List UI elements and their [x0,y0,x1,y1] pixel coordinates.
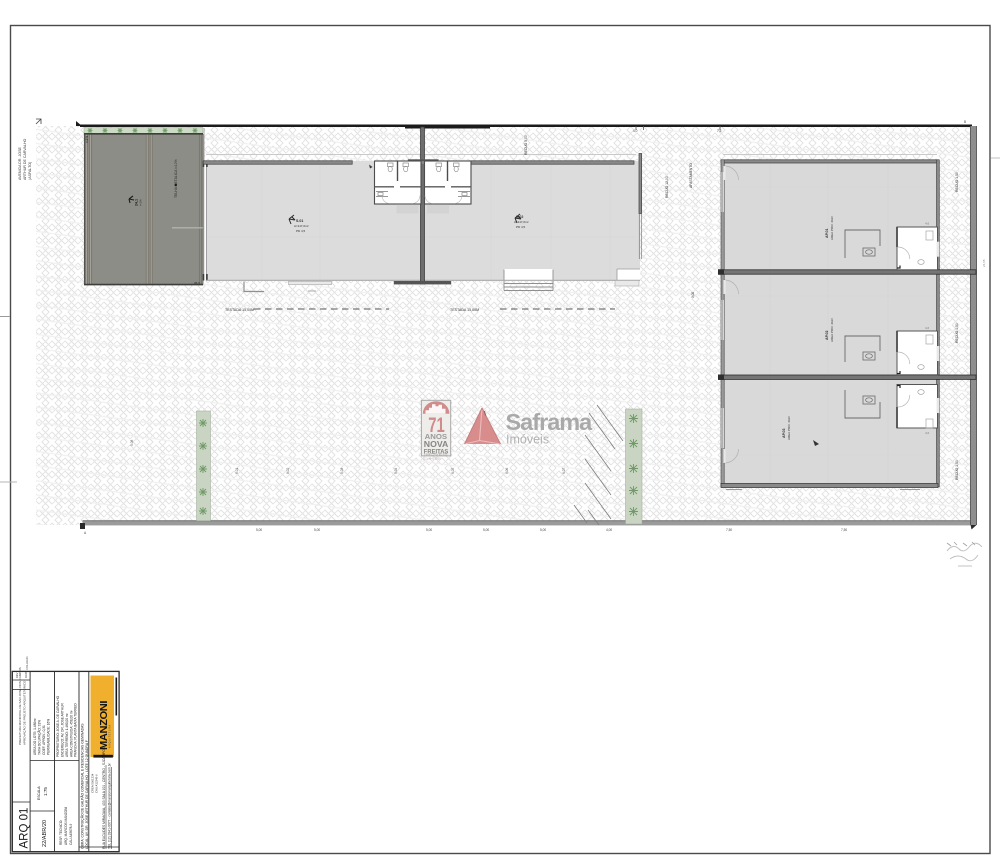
svg-text:AP.01: AP.01 [825,228,829,238]
svg-text:LOCAL: AV. DR. JOSE ARTHUR DE: LOCAL: AV. DR. JOSE ARTHUR DE CARVALHO -… [85,740,89,849]
svg-text:OBRA: CONSTRUÇÃO DE GALPÃO COM: OBRA: CONSTRUÇÃO DE GALPÃO COMERCIAL E R… [80,723,85,849]
svg-text:PRANCHA: PLANTA BAIXA TERREO: PRANCHA: PLANTA BAIXA TERREO [74,703,78,757]
svg-text:PD 4,5: PD 4,5 [296,229,306,233]
svg-text:i=1%: i=1% [85,136,89,143]
svg-text:AFASTAMENTO: AFASTAMENTO [689,163,693,188]
svg-text:ARQ 01: ARQ 01 [19,808,31,849]
svg-text:PREFEITURA MUNICIPAL DE SAO JO: PREFEITURA MUNICIPAL DE SAO JOSE DOS CAM… [18,667,22,745]
svg-text:RUA EUCLIDES MIRAGAIA, 433 SAL: RUA EUCLIDES MIRAGAIA, 433 SALA 101 - CE… [102,746,106,849]
svg-text:AREA PRIV. 44m²: AREA PRIV. 44m² [830,318,834,342]
svg-text:V.02: V.02 [286,468,290,474]
svg-text:7,5: 7,5 [717,129,722,133]
svg-text:S.01: S.01 [296,219,303,223]
svg-text:ENDEREÇO: AV. DR. JOSE ARTHUR: ENDEREÇO: AV. DR. JOSE ARTHUR [61,703,65,757]
svg-text:4,0: 4,0 [633,129,638,133]
svg-text:FOLHA A1: FOLHA A1 [25,656,29,670]
svg-text:24,65: 24,65 [982,259,986,267]
svg-text:V.06: V.06 [505,468,509,474]
svg-text:V.08: V.08 [130,440,134,446]
svg-text:V.03: V.03 [340,468,344,474]
svg-text:RECUO 12,00: RECUO 12,00 [665,176,669,198]
svg-text:RESP. TECNICO:: RESP. TECNICO: [59,820,63,845]
svg-text:(12) 3941 5000: (12) 3941 5000 [423,457,441,461]
svg-text:4,6: 4,6 [925,326,930,330]
svg-text:COEF. APROV.: 0,31: COEF. APROV.: 0,31 [42,725,46,755]
svg-text:5,00: 5,00 [256,528,262,532]
svg-text:AREA PRIV. 44m²: AREA PRIV. 44m² [787,416,791,440]
svg-text:APROVAÇÃO DE PROJETO ARQUITETO: APROVAÇÃO DE PROJETO ARQUITETONICO [22,680,27,745]
svg-text:22/ABR/20: 22/ABR/20 [42,820,48,847]
svg-text:4,00: 4,00 [606,528,612,532]
svg-text:4,6: 4,6 [925,431,930,435]
svg-text:TAXA OCUPAÇÃO: 31%: TAXA OCUPAÇÃO: 31% [37,720,42,755]
svg-text:PD 4,5: PD 4,5 [516,225,526,229]
svg-text:1:75: 1:75 [43,787,48,796]
svg-text:AREA TERRENO: 1.480,00 m²: AREA TERRENO: 1.480,00 m² [65,713,69,757]
svg-text:TESTADA 15,00M: TESTADA 15,00M [225,308,254,312]
svg-text:A=117,0m²: A=117,0m² [514,220,529,224]
svg-text:V.07: V.07 [562,468,566,474]
svg-text:V.05: V.05 [451,468,455,474]
svg-text:ESCALA:: ESCALA: [37,786,41,800]
svg-text:B: B [964,120,966,124]
svg-text:RECUO 1,50: RECUO 1,50 [955,172,959,192]
svg-text:IMÓVEIS: IMÓVEIS [424,452,448,457]
svg-text:36,3: 36,3 [194,281,200,285]
svg-text:AREA DO LOTE: 1.480m²: AREA DO LOTE: 1.480m² [33,718,37,755]
svg-text:TELHA METALICA i=10%: TELHA METALICA i=10% [174,159,178,198]
svg-text:7,50: 7,50 [841,528,847,532]
svg-text:5,00: 5,00 [426,528,432,532]
svg-text:S.02: S.02 [516,215,523,219]
svg-text:Saframa: Saframa [506,409,594,435]
svg-text:PROPRIETARIO: JOSE A. DE CARV: PROPRIETARIO: JOSE A. DE CARVALHO [56,695,60,757]
svg-text:5,00: 5,00 [540,528,546,532]
svg-text:CAU A12345-6: CAU A12345-6 [95,774,99,793]
svg-text:TEL (12) 3941-0077 - contato@m: TEL (12) 3941-0077 - contato@manzoniarqu… [108,762,112,849]
svg-text:ARQ. MARCOS MANZONI: ARQ. MARCOS MANZONI [64,807,68,845]
svg-text:AP.02: AP.02 [825,330,829,340]
svg-text:i=1%: i=1% [139,199,143,206]
svg-text:5,00: 5,00 [483,528,489,532]
svg-text:V.04: V.04 [394,468,398,474]
svg-text:4,6: 4,6 [925,222,930,226]
svg-text:(ASFALTO): (ASFALTO) [28,162,32,180]
svg-text:RECUO 5,00: RECUO 5,00 [524,135,528,155]
svg-text:5,00: 5,00 [314,528,320,532]
svg-text:AVENIDA DR. JOSE: AVENIDA DR. JOSE [18,147,22,180]
svg-text:AP.03: AP.03 [782,428,786,438]
svg-text:3,00: 3,00 [691,292,695,298]
svg-text:ARTHUR DE CARVALHO: ARTHUR DE CARVALHO [23,138,27,180]
svg-text:PERMEABILIDADE: 16%: PERMEABILIDADE: 16% [47,719,51,755]
svg-text:RECUO 1,50: RECUO 1,50 [955,323,959,343]
svg-text:TESTADA 15,00M: TESTADA 15,00M [450,308,479,312]
svg-text:RECUO 1,50: RECUO 1,50 [955,460,959,480]
svg-text:ARQUITETURA: ARQUITETURA [109,724,112,748]
svg-text:AREA PRIV. 44m²: AREA PRIV. 44m² [830,216,834,240]
svg-text:Imóveis: Imóveis [506,433,549,447]
svg-text:A=117,0m²: A=117,0m² [294,224,309,228]
svg-text:7,50: 7,50 [726,528,732,532]
svg-text:CAU A45678-9: CAU A45678-9 [69,824,73,845]
svg-text:DATA: DATA [24,671,28,678]
svg-text:V.01: V.01 [235,468,239,474]
